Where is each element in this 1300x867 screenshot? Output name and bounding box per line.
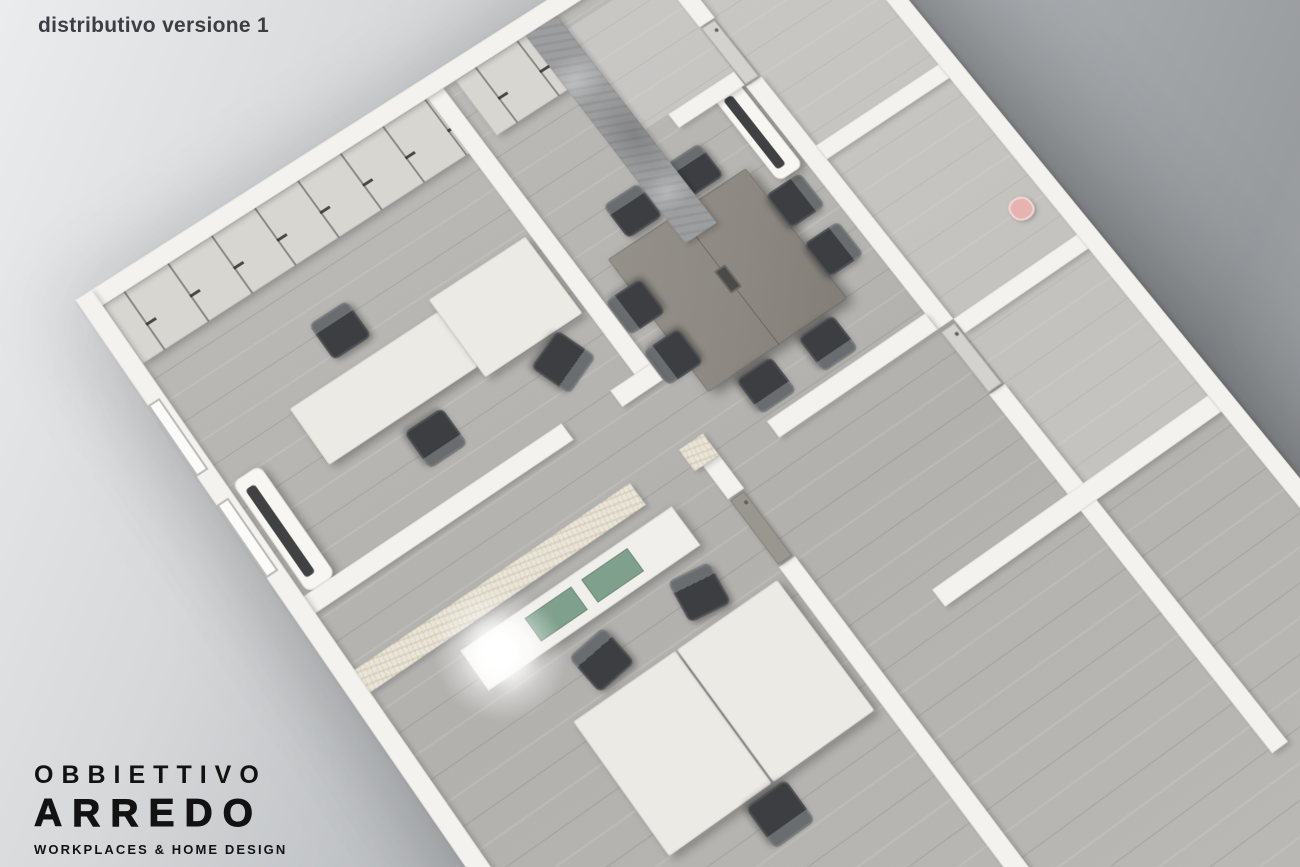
office-chair	[745, 779, 815, 849]
vestibule-floor	[567, 0, 734, 129]
exterior-wall-ne	[770, 0, 1300, 867]
meeting-chair	[804, 221, 864, 277]
window	[216, 498, 278, 579]
executive-desk	[290, 312, 478, 465]
office2-east-wall	[703, 455, 744, 500]
office-chair	[667, 562, 731, 623]
wood-floor	[103, 0, 1300, 867]
meeting-chair	[798, 315, 859, 373]
logo-line-1: OBBIETTIVO	[34, 763, 287, 788]
partition-wall	[989, 384, 1085, 496]
meeting-chair	[766, 173, 826, 229]
page-title: distributivo versione 1	[38, 14, 269, 38]
service-room-wall	[816, 64, 949, 159]
guest-chair	[309, 300, 372, 360]
sideboard	[460, 506, 700, 691]
logo-line-2: ARREDO	[34, 794, 287, 833]
fancoil-unit-meeting	[711, 79, 804, 181]
floor-plan	[75, 0, 1300, 867]
cable-port	[713, 264, 741, 294]
meeting-chair	[643, 328, 704, 386]
wardrobe-row	[103, 98, 469, 363]
service-door	[941, 323, 1002, 392]
office2-east-wall	[779, 556, 1239, 867]
executive-desk-return	[429, 237, 583, 378]
wardrobe-row-vestibule	[455, 36, 567, 136]
service-room-wall	[953, 234, 1088, 333]
floor-plan-render	[0, 0, 1300, 867]
service-rooms-floor	[661, 0, 1208, 483]
fancoil-unit	[232, 465, 336, 593]
window	[148, 398, 209, 477]
meeting-south-wall	[767, 313, 938, 437]
partition-wall	[1081, 500, 1288, 754]
sideboard-green-tray	[581, 548, 644, 603]
logo-tagline: WORKPLACES & HOME DESIGN	[34, 843, 287, 856]
partition-wall	[428, 88, 651, 374]
meeting-table	[608, 168, 847, 392]
open-office-desk	[677, 580, 875, 782]
sideboard-green-tray	[524, 586, 587, 641]
partition-wall	[746, 76, 953, 329]
office-chair	[568, 627, 635, 693]
meeting-chair	[664, 143, 724, 198]
exterior-wall-se	[845, 841, 1300, 867]
sphere-lamp	[476, 627, 529, 679]
map-mural-wall	[355, 483, 646, 693]
open-office-desk	[573, 651, 772, 857]
vestibule-wall	[668, 71, 745, 128]
concrete-feature-wall	[526, 16, 717, 244]
table-seam	[677, 213, 779, 345]
map-mural-wall	[679, 433, 719, 471]
presentation-slide: distributivo versione 1	[0, 0, 1300, 867]
lamp-flare	[406, 561, 596, 749]
partition-wall	[646, 0, 715, 28]
task-chair	[531, 330, 596, 394]
guest-chair	[404, 408, 468, 470]
entrance-door	[701, 20, 758, 84]
meeting-chair	[605, 278, 666, 335]
company-logo: OBBIETTIVO ARREDO WORKPLACES & HOME DESI…	[34, 763, 287, 856]
meeting-chair	[603, 183, 663, 239]
office1-south-wall	[304, 423, 574, 613]
corridor-south-wall	[932, 395, 1221, 607]
office1-south-wall	[610, 364, 663, 407]
pink-sink	[1004, 192, 1039, 224]
office2-door	[730, 491, 792, 565]
exterior-wall-nw	[75, 0, 797, 316]
meeting-chair	[736, 356, 797, 414]
